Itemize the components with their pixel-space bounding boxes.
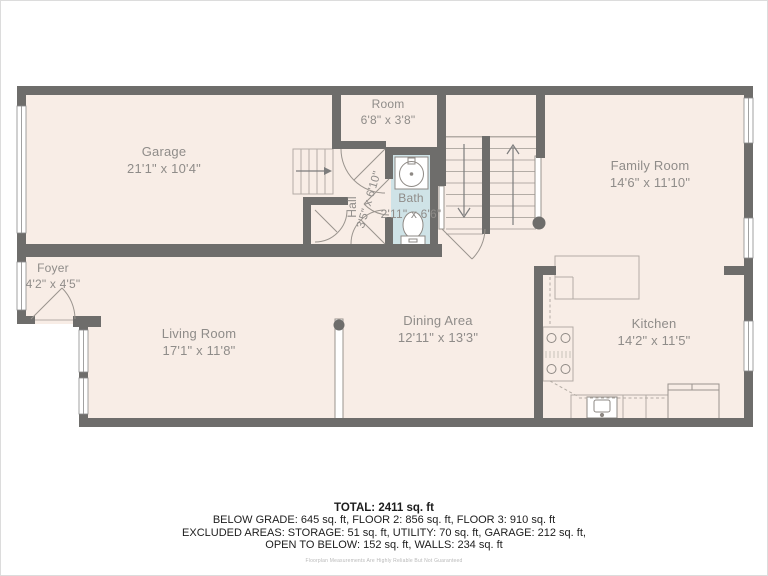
room-name: Family Room xyxy=(610,157,690,174)
room-dims: 14'6" x 11'10" xyxy=(610,174,690,191)
room-dims: 12'11" x 13'3" xyxy=(398,329,478,346)
room-dims: 4'2" x 4'5" xyxy=(26,277,81,293)
room-label-room: Room 6'8" x 3'8" xyxy=(361,97,416,129)
kitchen-sink-icon xyxy=(587,397,617,418)
room-dims: 14'2" x 11'5" xyxy=(618,332,691,349)
summary-excluded-1: EXCLUDED AREAS: STORAGE: 51 sq. ft, UTIL… xyxy=(1,527,767,539)
stair-newel-post xyxy=(533,217,546,230)
room-dims: 21'1" x 10'4" xyxy=(127,160,201,177)
room-dims: 17'1" x 11'8" xyxy=(162,342,236,359)
floorplan-drawing xyxy=(1,1,768,576)
room-label-garage: Garage 21'1" x 10'4" xyxy=(127,143,201,177)
bath-sink-icon xyxy=(395,157,428,189)
floorplan-page: Garage 21'1" x 10'4" Room 6'8" x 3'8" Ha… xyxy=(0,0,768,576)
room-name: Dining Area xyxy=(398,312,478,329)
kitchen-island xyxy=(668,384,719,419)
room-name: Bath xyxy=(381,191,442,207)
room-label-living-room: Living Room 17'1" x 11'8" xyxy=(162,325,236,359)
room-name: Room xyxy=(361,97,416,113)
summary-excluded-2: OPEN TO BELOW: 152 sq. ft, WALLS: 234 sq… xyxy=(1,539,767,551)
room-name: Foyer xyxy=(26,261,81,277)
area-summary: TOTAL: 2411 sq. ft BELOW GRADE: 645 sq. … xyxy=(1,502,767,552)
room-label-dining-area: Dining Area 12'11" x 13'3" xyxy=(398,312,478,346)
disclaimer-text: Floorplan Measurements Are Highly Reliab… xyxy=(1,558,767,564)
room-dims: 2'11" x 6'6" xyxy=(381,207,442,223)
room-name: Living Room xyxy=(162,325,236,342)
room-label-family-room: Family Room 14'6" x 11'10" xyxy=(610,157,690,191)
room-name: Kitchen xyxy=(618,315,691,332)
room-label-bath: Bath 2'11" x 6'6" xyxy=(381,191,442,223)
stair-railing xyxy=(535,156,541,218)
room-label-foyer: Foyer 4'2" x 4'5" xyxy=(26,261,81,293)
room-name: Garage xyxy=(127,143,201,160)
summary-floors: BELOW GRADE: 645 sq. ft, FLOOR 2: 856 sq… xyxy=(1,514,767,526)
room-dims: 6'8" x 3'8" xyxy=(361,113,416,129)
room-label-kitchen: Kitchen 14'2" x 11'5" xyxy=(618,315,691,349)
dining-railing xyxy=(335,319,343,419)
newel-post xyxy=(334,320,345,331)
bottom-counter xyxy=(571,395,668,419)
summary-total: TOTAL: 2411 sq. ft xyxy=(1,502,767,514)
